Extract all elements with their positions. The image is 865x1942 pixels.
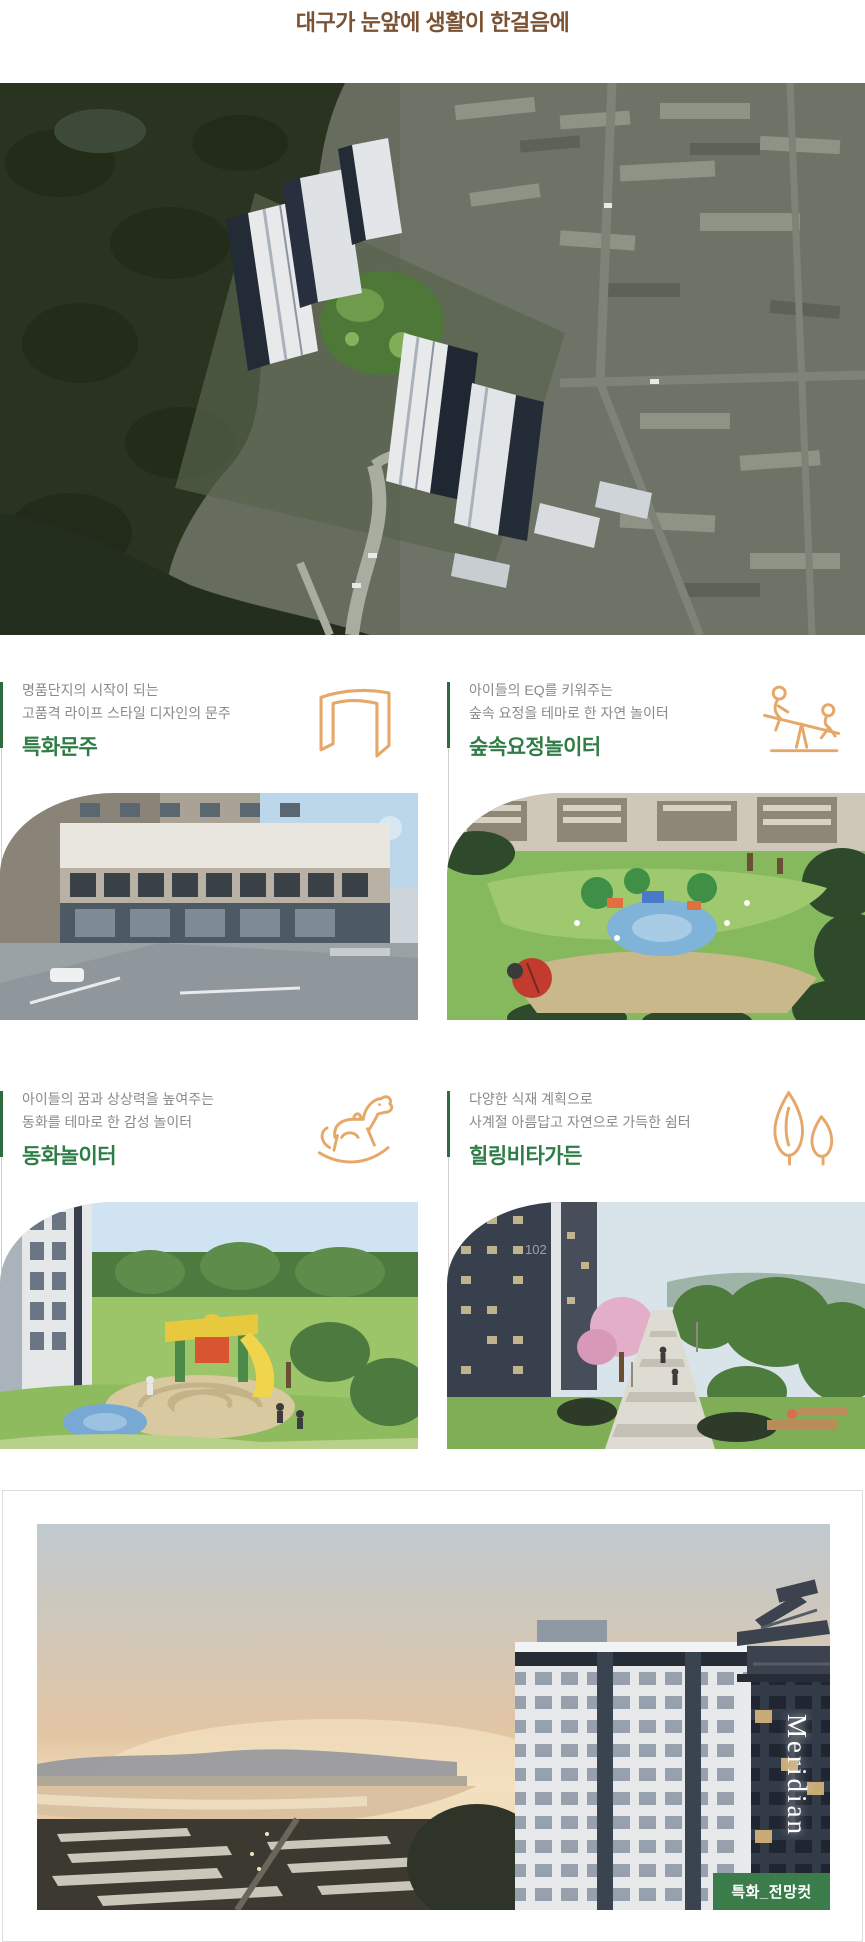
gate-icon	[308, 675, 396, 761]
feature-desc-line2: 동화를 테마로 한 감성 놀이터	[22, 1114, 192, 1130]
feature-desc-line2: 숲속 요정을 테마로 한 자연 놀이터	[469, 705, 669, 721]
rocking-horse-icon	[308, 1084, 396, 1170]
feature-desc-line1: 아이들의 꿈과 상상력을 높여주는	[22, 1091, 214, 1107]
feature-photo-vita-garden: 102	[447, 1202, 865, 1449]
feature-card-forest-playground: 아이들의 EQ를 키워주는 숲속 요정을 테마로 한 자연 놀이터 숲속요정놀이…	[447, 679, 865, 1020]
sunset-view-rendering	[37, 1524, 830, 1910]
hero-aerial-image	[0, 83, 865, 635]
panorama-card: Meridian 특화_전망컷	[2, 1490, 863, 1942]
seesaw-icon	[755, 675, 843, 761]
accent-line-green	[0, 682, 3, 748]
feature-photo-fairytale-playground	[0, 1202, 418, 1449]
feature-row-1: 명품단지의 시작이 되는 고품격 라이프 스타일 디자인의 문주 특화문주	[0, 679, 865, 1020]
feature-desc-line2: 고품격 라이프 스타일 디자인의 문주	[22, 705, 231, 721]
feature-card-gate: 명품단지의 시작이 되는 고품격 라이프 스타일 디자인의 문주 특화문주	[0, 679, 418, 1020]
feature-card-fairytale-playground: 아이들의 꿈과 상상력을 높여주는 동화를 테마로 한 감성 놀이터 동화놀이터	[0, 1088, 418, 1449]
accent-line-green	[447, 1091, 450, 1157]
trees-icon	[755, 1084, 843, 1170]
feature-desc-line1: 아이들의 EQ를 키워주는	[469, 682, 613, 698]
view-cut-badge: 특화_전망컷	[713, 1873, 830, 1910]
feature-photo-gate	[0, 793, 418, 1020]
feature-desc-line1: 다양한 식재 계획으로	[469, 1091, 593, 1107]
panorama-image: Meridian 특화_전망컷	[37, 1524, 830, 1910]
building-number-label: 102	[525, 1242, 547, 1257]
accent-line-green	[447, 682, 450, 748]
feature-desc-line2: 사계절 아름답고 자연으로 가득한 쉼터	[469, 1114, 691, 1130]
feature-card-vita-garden: 다양한 식재 계획으로 사계절 아름답고 자연으로 가득한 쉼터 힐링비타가든	[447, 1088, 865, 1449]
accent-line-green	[0, 1091, 3, 1157]
meridian-signage: Meridian	[781, 1714, 812, 1884]
page-title: 대구가 눈앞에 생활이 한걸음에	[0, 0, 865, 37]
feature-photo-forest-playground	[447, 793, 865, 1020]
feature-desc-line1: 명품단지의 시작이 되는	[22, 682, 159, 698]
aerial-complex-rendering	[0, 83, 865, 635]
feature-row-2: 아이들의 꿈과 상상력을 높여주는 동화를 테마로 한 감성 놀이터 동화놀이터	[0, 1088, 865, 1449]
